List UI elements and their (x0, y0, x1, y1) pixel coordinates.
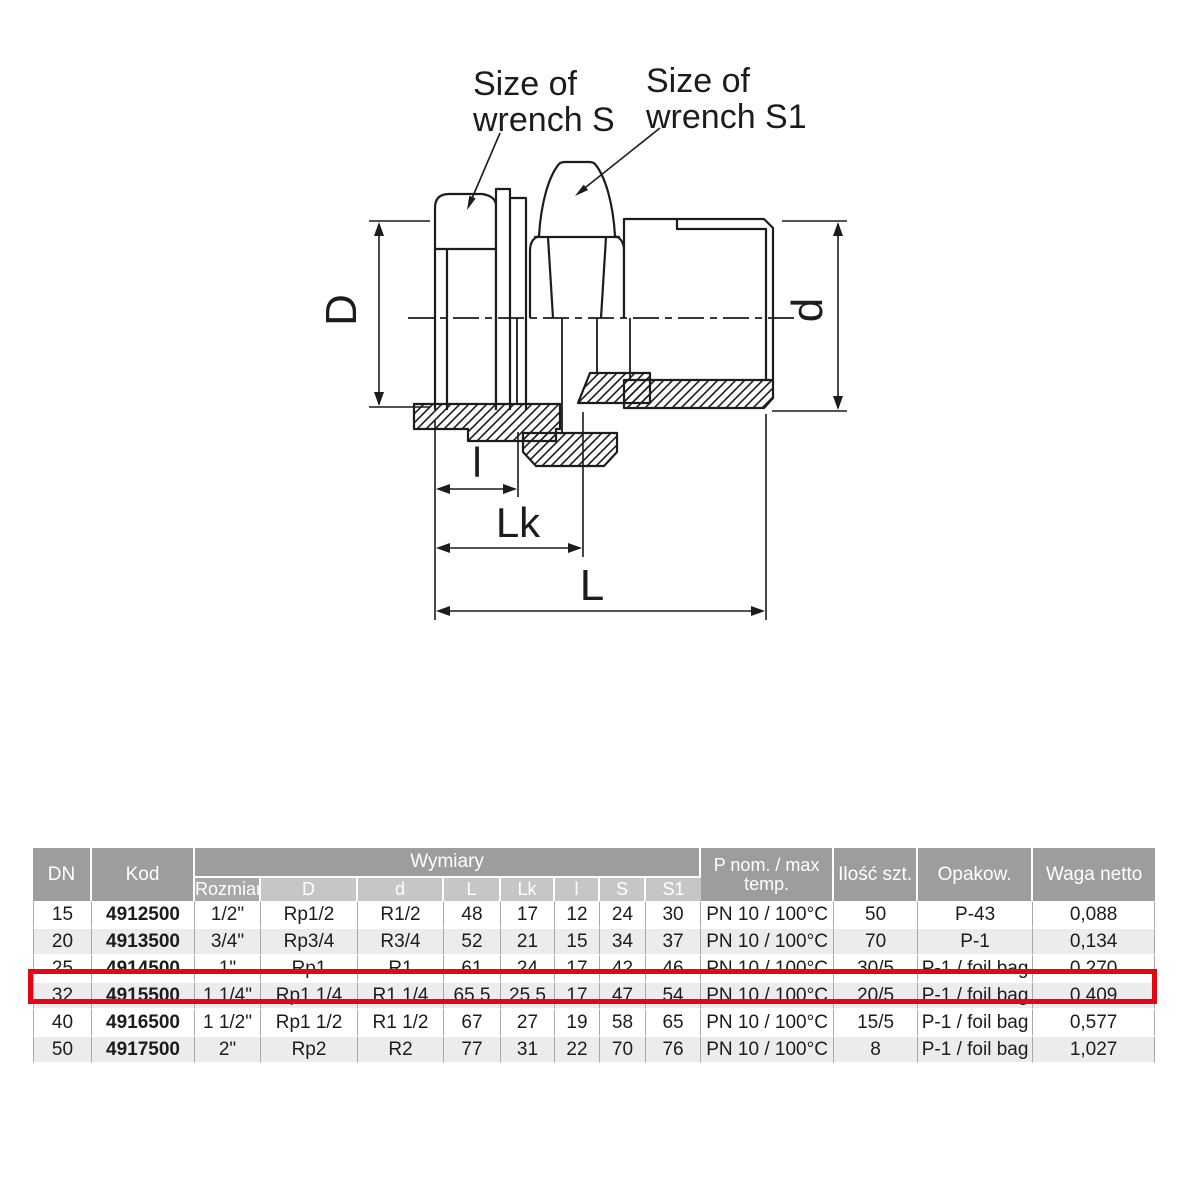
cell-kod: 4914500 (92, 955, 195, 982)
cell-S1: 37 (646, 928, 701, 955)
cell-Lk: 21 (501, 928, 555, 955)
cell-S1: 54 (646, 982, 701, 1009)
catalog-page: Size of wrench S Size of wrench S1 D d l… (0, 0, 1181, 1181)
cell-kod: 4912500 (92, 901, 195, 928)
cell-kod: 4913500 (92, 928, 195, 955)
col-header-pnom: P nom. / max temp. (701, 848, 834, 901)
cell-pnom: PN 10 / 100°C (701, 955, 834, 982)
col-header-d: d (358, 876, 444, 901)
cell-opakow: P-1 (918, 928, 1033, 955)
cell-d: R2 (358, 1036, 444, 1063)
col-header-S: S (600, 876, 646, 901)
male-end-outline (624, 219, 773, 380)
cell-L: 61 (444, 955, 501, 982)
cell-d: R1 (358, 955, 444, 982)
cell-l: 17 (555, 955, 600, 982)
col-header-ilosc: Ilość szt. (834, 848, 918, 901)
header-row-main: DN Kod Wymiary P nom. / max temp. Ilość … (33, 848, 1155, 876)
cell-D: Rp1 (261, 955, 358, 982)
dim-label-L: L (580, 561, 604, 610)
dim-label-l: l (472, 439, 481, 486)
cell-waga: 0,134 (1033, 928, 1155, 955)
section-hatch-male (624, 380, 773, 408)
cell-S1: 65 (646, 1009, 701, 1036)
cell-rozmiar: 1/2" (195, 901, 261, 928)
cell-dn: 20 (33, 928, 92, 955)
cell-dn: 50 (33, 1036, 92, 1063)
collar-outline (496, 189, 510, 410)
cell-L: 77 (444, 1036, 501, 1063)
cell-dn: 40 (33, 1009, 92, 1036)
table-row: 25 4914500 1" Rp1 R1 61 24 17 42 46 PN 1… (33, 955, 1155, 982)
cell-Lk: 24 (501, 955, 555, 982)
cell-Lk: 17 (501, 901, 555, 928)
cell-dn: 15 (33, 901, 92, 928)
spec-table: DN Kod Wymiary P nom. / max temp. Ilość … (33, 848, 1155, 1063)
cell-l: 12 (555, 901, 600, 928)
wrench-s1-label-line1: Size of (646, 62, 750, 100)
cell-S: 58 (600, 1009, 646, 1036)
col-header-L: L (444, 876, 501, 901)
cell-D: Rp1 1/4 (261, 982, 358, 1009)
col-header-l: l (555, 876, 600, 901)
cell-opakow: P-43 (918, 901, 1033, 928)
table-row: 20 4913500 3/4" Rp3/4 R3/4 52 21 15 34 3… (33, 928, 1155, 955)
pnom-line2: temp. (701, 875, 832, 894)
cell-ilosc: 20/5 (834, 982, 918, 1009)
cell-S: 34 (600, 928, 646, 955)
cell-opakow: P-1 / foil bag (918, 982, 1033, 1009)
cell-D: Rp2 (261, 1036, 358, 1063)
cell-ilosc: 30/5 (834, 955, 918, 982)
table-row: 15 4912500 1/2" Rp1/2 R1/2 48 17 12 24 3… (33, 901, 1155, 928)
cell-opakow: P-1 / foil bag (918, 1036, 1033, 1063)
cell-S1: 76 (646, 1036, 701, 1063)
section-hatch-nut-bottom (523, 433, 617, 466)
cell-Lk: 27 (501, 1009, 555, 1036)
cell-rozmiar: 2" (195, 1036, 261, 1063)
cell-D: Rp1 1/2 (261, 1009, 358, 1036)
cell-L: 48 (444, 901, 501, 928)
cell-S: 24 (600, 901, 646, 928)
cell-ilosc: 50 (834, 901, 918, 928)
cell-Lk: 31 (501, 1036, 555, 1063)
cell-ilosc: 15/5 (834, 1009, 918, 1036)
cell-kod: 4915500 (92, 982, 195, 1009)
cell-S: 42 (600, 955, 646, 982)
cell-pnom: PN 10 / 100°C (701, 928, 834, 955)
col-header-D: D (261, 876, 358, 901)
dim-label-Lk: Lk (496, 499, 541, 546)
cell-rozmiar: 1" (195, 955, 261, 982)
col-header-waga: Waga netto (1033, 848, 1155, 901)
nut-s-outline (435, 194, 496, 410)
cell-S1: 30 (646, 901, 701, 928)
dim-label-d: d (783, 298, 832, 322)
cell-waga: 0,088 (1033, 901, 1155, 928)
col-header-rozmiar: Rozmiar (195, 876, 261, 901)
pnom-line1: P nom. / max (701, 856, 832, 875)
cell-pnom: PN 10 / 100°C (701, 1009, 834, 1036)
wrench-s-label-line1: Size of (473, 65, 577, 103)
cell-dn: 25 (33, 955, 92, 982)
cell-opakow: P-1 / foil bag (918, 955, 1033, 982)
cell-L: 67 (444, 1009, 501, 1036)
cell-S: 47 (600, 982, 646, 1009)
cell-pnom: PN 10 / 100°C (701, 901, 834, 928)
table-row: 50 4917500 2" Rp2 R2 77 31 22 70 76 PN 1… (33, 1036, 1155, 1063)
cell-rozmiar: 1 1/4" (195, 982, 261, 1009)
cell-S1: 46 (646, 955, 701, 982)
cell-d: R1 1/4 (358, 982, 444, 1009)
cell-Lk: 25.5 (501, 982, 555, 1009)
cell-L: 65.5 (444, 982, 501, 1009)
cell-d: R3/4 (358, 928, 444, 955)
cell-pnom: PN 10 / 100°C (701, 982, 834, 1009)
cell-D: Rp1/2 (261, 901, 358, 928)
col-header-kod: Kod (92, 848, 195, 901)
cell-ilosc: 70 (834, 928, 918, 955)
cell-l: 22 (555, 1036, 600, 1063)
cell-waga: 1,027 (1033, 1036, 1155, 1063)
cell-rozmiar: 1 1/2" (195, 1009, 261, 1036)
cell-d: R1/2 (358, 901, 444, 928)
cell-waga: 0,577 (1033, 1009, 1155, 1036)
col-header-S1: S1 (646, 876, 701, 901)
technical-drawing: Size of wrench S Size of wrench S1 D d l… (0, 0, 1181, 840)
wrench-s-label-line2: wrench S (472, 101, 615, 139)
dim-label-D: D (317, 294, 366, 326)
cell-L: 52 (444, 928, 501, 955)
cell-opakow: P-1 / foil bag (918, 1009, 1033, 1036)
wrench-s1-label-line2: wrench S1 (645, 98, 807, 136)
cell-D: Rp3/4 (261, 928, 358, 955)
cell-kod: 4916500 (92, 1009, 195, 1036)
cell-S: 70 (600, 1036, 646, 1063)
cell-waga: 0.270 (1033, 955, 1155, 982)
cell-l: 19 (555, 1009, 600, 1036)
cell-l: 15 (555, 928, 600, 955)
col-header-opakow: Opakow. (918, 848, 1033, 901)
table-row: 40 4916500 1 1/2" Rp1 1/2 R1 1/2 67 27 1… (33, 1009, 1155, 1036)
cell-d: R1 1/2 (358, 1009, 444, 1036)
table-row-highlighted: 32 4915500 1 1/4" Rp1 1/4 R1 1/4 65.5 25… (33, 982, 1155, 1009)
cell-pnom: PN 10 / 100°C (701, 1036, 834, 1063)
cell-rozmiar: 3/4" (195, 928, 261, 955)
cell-l: 17 (555, 982, 600, 1009)
cell-dn: 32 (33, 982, 92, 1009)
nut-s1-outline (530, 162, 624, 318)
col-header-Lk: Lk (501, 876, 555, 901)
spec-table-wrap: DN Kod Wymiary P nom. / max temp. Ilość … (33, 848, 1155, 1063)
col-header-wymiary: Wymiary (195, 848, 701, 876)
cell-kod: 4917500 (92, 1036, 195, 1063)
cell-waga: 0,409 (1033, 982, 1155, 1009)
col-header-dn: DN (33, 848, 92, 901)
cell-ilosc: 8 (834, 1036, 918, 1063)
